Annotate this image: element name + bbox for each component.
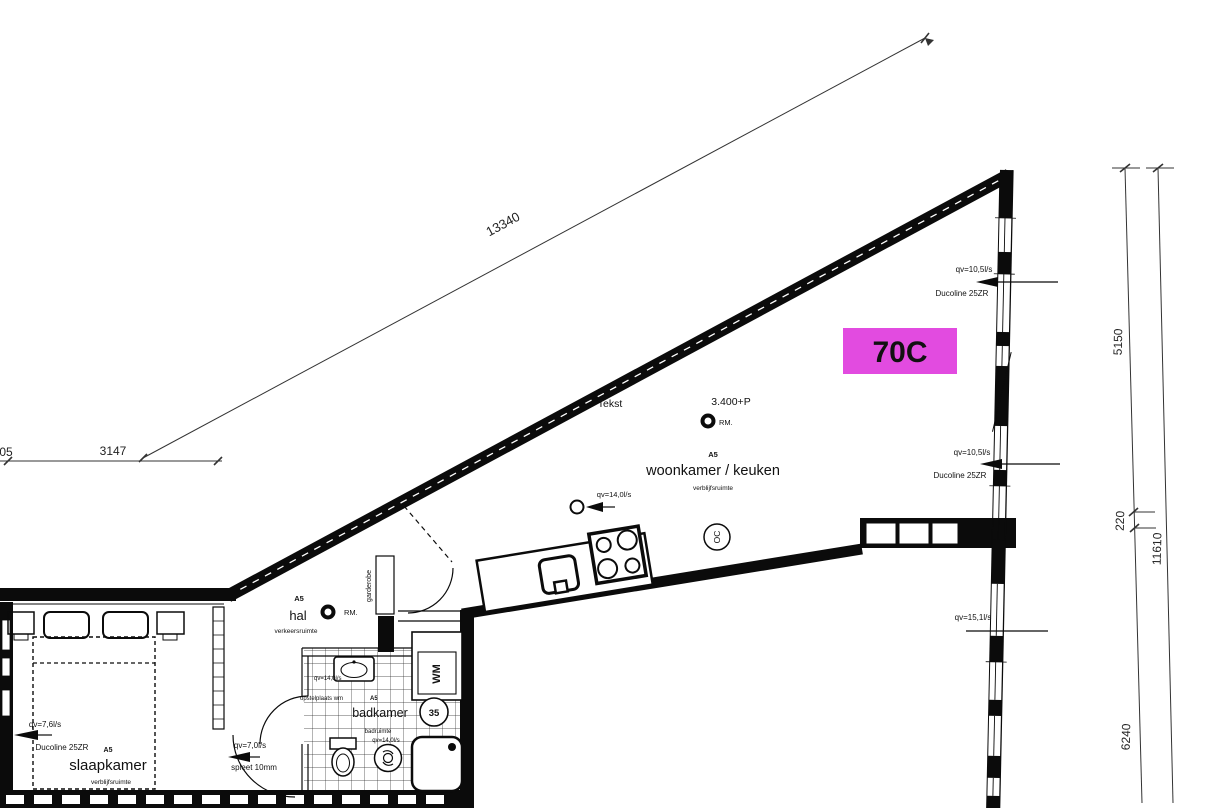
vent-bedroom-door-note: spleet 10mm [231, 763, 277, 772]
wm-label: WM [431, 664, 443, 684]
garderobe-label: garderobe [366, 570, 373, 602]
dim-left: 3147 [100, 444, 127, 458]
vent-facade-mid-device: Ducoline 25ZR [934, 471, 987, 480]
level-label: 3.400+P [711, 396, 750, 408]
room-tag-woonkamer: A5 [708, 450, 718, 459]
badkamer-note-tag: A5 [370, 696, 378, 702]
oc-label: OC [712, 531, 722, 544]
nightstand-right [157, 612, 184, 634]
vent-bedroom-tag: A5 [104, 747, 113, 754]
rm-label-woonkamer: RM. [719, 418, 733, 427]
stove [589, 526, 646, 583]
room-name-hal: hal [289, 608, 306, 623]
room-category-slaapkamer: verblijfsruimte [91, 779, 131, 786]
vent-kitchen-qv: qv=14,0l/s [597, 490, 632, 499]
vent-facade-low-qv: qv=15,1l/s [955, 613, 992, 622]
vent-bedroom-device: Ducoline 25ZR [36, 743, 89, 752]
room-name-slaapkamer: slaapkamer [69, 757, 147, 774]
kitchen-counter [475, 525, 652, 612]
pillow-left [44, 612, 89, 638]
badkamer-door-number: 35 [429, 708, 440, 719]
floorplan-svg: 70C 13340 05 3147 5150 220 11610 6240 3.… [0, 0, 1232, 808]
room-name-badkamer: badkamer [352, 706, 408, 720]
sight-line-dashed [404, 506, 452, 562]
tekst-note: Tekst [598, 398, 623, 410]
badkamer-note: opstelplaats wm [300, 696, 343, 702]
room-name-woonkamer: woonkamer / keuken [645, 463, 780, 479]
rm-ring-hal [323, 607, 334, 618]
pillow-right [103, 612, 148, 638]
vent-facade-top-device: Ducoline 25ZR [936, 289, 989, 298]
dim-diagonal: 13340 [483, 209, 522, 239]
dim-right-spacer: 220 [1113, 510, 1128, 531]
dim-right-overall: 11610 [1150, 532, 1165, 565]
room-category-woonkamer: verblijfsruimte [693, 485, 733, 492]
shower-tray [412, 737, 462, 791]
bathroom-door-arc [260, 696, 308, 744]
floorplan-canvas: 70C 13340 05 3147 5150 220 11610 6240 3.… [0, 0, 1232, 808]
unit-label: 70C [872, 336, 927, 369]
vent-facade-mid-qv: qv=10,5l/s [954, 448, 991, 457]
vent-facade-top-qv: qv=10,5l/s [956, 265, 993, 274]
vent-bedroom-door-qv: qv=7,0l/s [234, 741, 266, 750]
dim-right-lower: 6240 [1119, 723, 1134, 750]
vent-bedroom-qv: qv=7,6l/s [29, 720, 61, 729]
bedroom-hall-wall [213, 607, 224, 729]
rm-ring-woonkamer [703, 416, 714, 427]
room-tag-hal: A5 [294, 594, 304, 603]
dim-left-partial: 05 [0, 445, 13, 459]
room-category-hal: verkeersruimte [275, 628, 318, 635]
room-category-badkamer: badruimte [365, 729, 392, 735]
badkamer-qv-bottom: qv=14,0l/s [372, 738, 400, 744]
badkamer-qv-top: qv=14,0l/s [314, 676, 342, 682]
hall-door-arc [408, 568, 453, 613]
dim-right-upper: 5150 [1111, 328, 1126, 355]
rm-label-hal: RM. [344, 608, 358, 617]
toilet [330, 738, 356, 776]
extract-valve [375, 745, 402, 772]
walls-group [0, 175, 1016, 808]
